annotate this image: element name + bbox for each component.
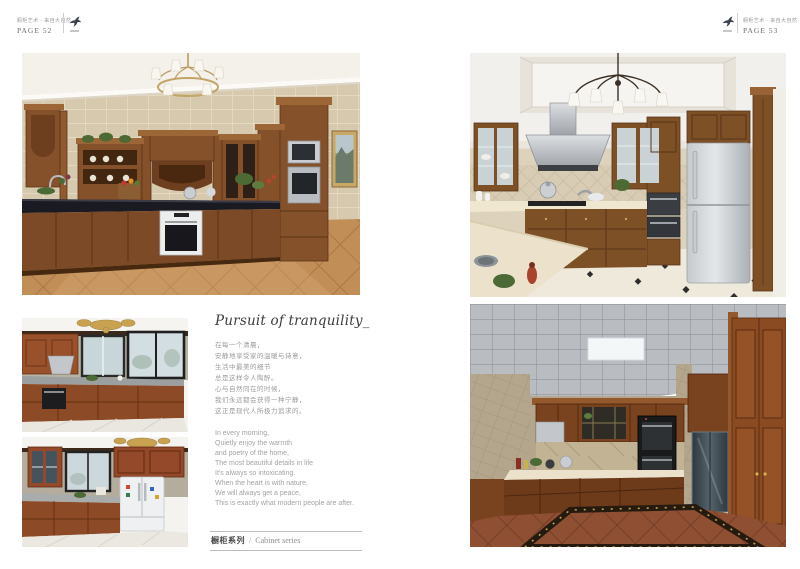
- bird-logo: [68, 16, 82, 28]
- poem-line: 生活中最美的细节: [215, 362, 373, 373]
- article-column: Pursuit of tranquility_ 在每一个清晨， 安静地享受家的温…: [215, 313, 373, 509]
- poem-line: When the heart is with nature,: [215, 479, 373, 489]
- series-separator: /: [249, 536, 251, 545]
- bird-icon: [721, 16, 735, 28]
- series-name-en: Cabinet series: [255, 536, 300, 545]
- series-name-cn: 橱柜系列: [211, 536, 245, 545]
- logo-caption-mark: [70, 30, 79, 32]
- kitchen-photo-mid-left-bottom: [22, 437, 188, 547]
- poem-line: This is exactly what modern people are a…: [215, 499, 373, 509]
- poem-line: and poetry of the home,: [215, 449, 373, 459]
- poem-english: In every morning, Quietly enjoy the warm…: [215, 429, 373, 509]
- catalog-spread: 橱柜艺术 · 来自大自然 PAGE 52 橱柜艺术 · 来自大自然 PAGE 5…: [0, 0, 800, 569]
- bird-icon: [68, 16, 82, 28]
- header-right-page-number: PAGE 53: [743, 26, 797, 35]
- series-label: 橱柜系列 / Cabinet series: [210, 531, 362, 551]
- poem-chinese: 在每一个清晨， 安静地享受家的温暖与诗意， 生活中最美的细节 总是这样令人陶醉。…: [215, 340, 373, 417]
- poem-line: 在每一个清晨，: [215, 340, 373, 351]
- kitchen-photo-top-right: [470, 53, 786, 297]
- poem-line: In every morning,: [215, 429, 373, 439]
- series-text: 橱柜系列 / Cabinet series: [210, 532, 362, 550]
- logo-caption-mark: [723, 30, 732, 32]
- bird-logo-right: [721, 16, 735, 28]
- poem-line: We will always get a peace,: [215, 489, 373, 499]
- kitchen-photo-top-left: [22, 53, 360, 295]
- poem-line: It's always so intoxicating.: [215, 469, 373, 479]
- poem-line: The most beautiful details in life: [215, 459, 373, 469]
- header-right-tagline: 橱柜艺术 · 来自大自然: [743, 17, 797, 24]
- kitchen-photo-bottom-right: [470, 304, 786, 547]
- poem-line: 安静地享受家的温暖与诗意，: [215, 351, 373, 362]
- poem-line: 心与自然同在的时候，: [215, 384, 373, 395]
- header-right: 橱柜艺术 · 来自大自然 PAGE 53: [743, 17, 797, 35]
- article-title: Pursuit of tranquility_: [215, 313, 373, 329]
- poem-line: 我们永远都会获得一种宁静，: [215, 395, 373, 406]
- poem-line: 这正是现代人所极力追求的。: [215, 406, 373, 417]
- header-right-divider: [737, 13, 738, 33]
- header-left-divider: [63, 13, 64, 33]
- poem-line: 总是这样令人陶醉。: [215, 373, 373, 384]
- kitchen-photo-mid-left-top: [22, 318, 188, 432]
- series-rule-bottom: [210, 550, 362, 551]
- poem-line: Quietly enjoy the warmth: [215, 439, 373, 449]
